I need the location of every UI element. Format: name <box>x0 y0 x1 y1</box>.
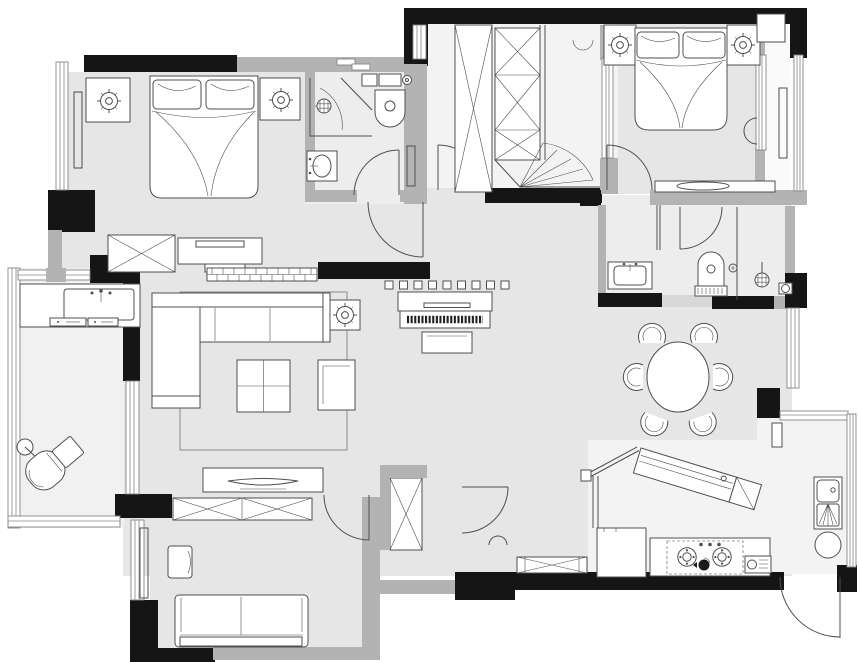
door-entry <box>780 577 840 638</box>
shoe-cabinet-x <box>517 557 587 573</box>
laundry-sink <box>64 289 134 320</box>
brick-half-wall <box>207 268 317 281</box>
cabinet <box>757 14 785 42</box>
floor-plan-page <box>0 0 860 662</box>
coffee-table <box>237 360 290 412</box>
vanity-sink <box>307 151 337 181</box>
double-bed <box>635 28 727 130</box>
round-table <box>647 342 709 412</box>
floor-plan-canvas <box>0 0 860 662</box>
wardrobe-x <box>108 235 175 272</box>
stacked-wardrobe-x <box>495 25 545 160</box>
sliding-door-balcony <box>126 381 139 494</box>
wall-top <box>413 8 797 24</box>
wardrobe-x <box>173 498 312 520</box>
double-bed <box>150 76 258 198</box>
armchair <box>318 360 355 410</box>
wall-bedroom1-top <box>84 55 237 72</box>
round-stool <box>815 532 841 558</box>
window-junior-west <box>131 520 144 600</box>
sliding-window-master-bay <box>756 55 766 150</box>
wall-bath1-top <box>237 57 404 72</box>
window-bedroom1-west <box>56 62 68 190</box>
window-kitchen-east <box>847 414 856 567</box>
dot-screen <box>385 281 509 289</box>
window-bay-east <box>794 55 803 191</box>
cooking-counter <box>650 538 771 576</box>
vanity-sink <box>608 262 652 289</box>
tall-wardrobe-x <box>455 25 492 192</box>
fridge <box>597 528 646 577</box>
laundry-counter <box>20 284 140 327</box>
small-appliance <box>745 556 771 573</box>
tv-unit <box>203 468 323 492</box>
double-sink <box>814 477 842 529</box>
closet-x <box>380 465 427 550</box>
piano-bench <box>422 332 472 353</box>
window-kitchen-top <box>780 411 848 420</box>
wall-cabinet <box>772 423 782 447</box>
window-closet-west <box>413 25 426 59</box>
window-dining-east <box>787 308 799 388</box>
daybed-sofa <box>175 595 308 647</box>
shower-head-icon <box>317 99 331 113</box>
sliding-window-bedroom2-closet <box>602 58 613 158</box>
shower-head-icon <box>755 273 769 287</box>
desk-chair <box>168 546 192 578</box>
low-shelf <box>655 181 775 192</box>
